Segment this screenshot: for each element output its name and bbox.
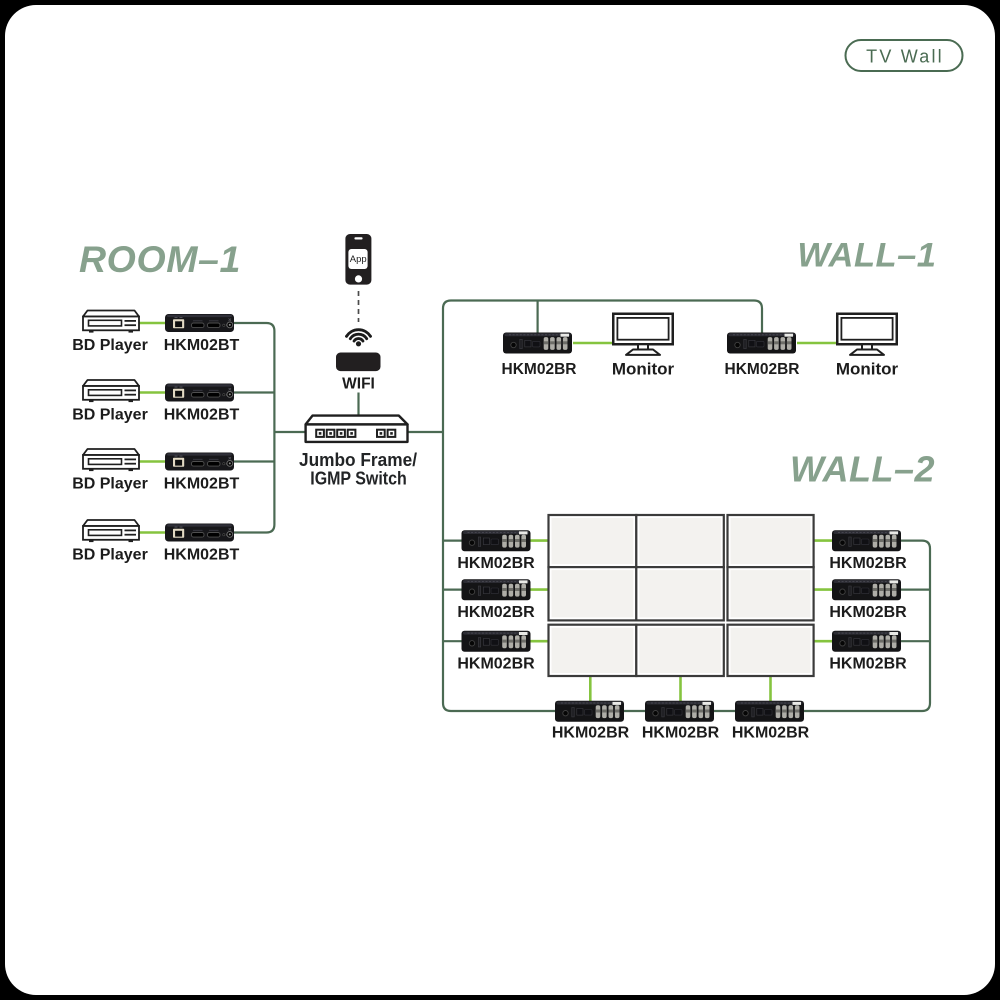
svg-text:HKM02BT: HKM02BT [164,337,240,354]
svg-text:HKM02BR: HKM02BR [829,656,907,673]
svg-text:WALL–1: WALL–1 [797,237,936,275]
svg-text:BD Player: BD Player [72,337,148,354]
svg-text:HKM02BR: HKM02BR [642,725,720,742]
svg-text:HKM02BT: HKM02BT [164,407,240,424]
svg-text:ROOM–1: ROOM–1 [79,238,241,280]
svg-text:HKM02BR: HKM02BR [552,725,630,742]
svg-text:HKM02BR: HKM02BR [829,604,907,621]
svg-text:TV Wall: TV Wall [866,46,944,66]
svg-text:BD Player: BD Player [72,476,148,493]
svg-text:Monitor: Monitor [836,359,899,378]
svg-text:HKM02BR: HKM02BR [457,656,535,673]
svg-text:WIFI: WIFI [342,376,375,393]
svg-text:HKM02BR: HKM02BR [457,555,535,572]
svg-text:HKM02BR: HKM02BR [457,604,535,621]
svg-text:Jumbo Frame/: Jumbo Frame/ [299,450,417,470]
svg-text:HKM02BR: HKM02BR [732,725,810,742]
svg-text:Monitor: Monitor [612,359,675,378]
svg-text:BD Player: BD Player [72,407,148,424]
svg-text:HKM02BT: HKM02BT [164,547,240,564]
svg-text:BD Player: BD Player [72,547,148,564]
svg-text:HKM02BR: HKM02BR [725,361,800,378]
svg-text:HKM02BT: HKM02BT [164,476,240,493]
svg-text:IGMP Switch: IGMP Switch [310,469,407,489]
svg-text:HKM02BR: HKM02BR [502,361,577,378]
svg-text:WALL–2: WALL–2 [790,449,935,490]
svg-text:App: App [350,254,367,265]
svg-text:HKM02BR: HKM02BR [829,555,907,572]
